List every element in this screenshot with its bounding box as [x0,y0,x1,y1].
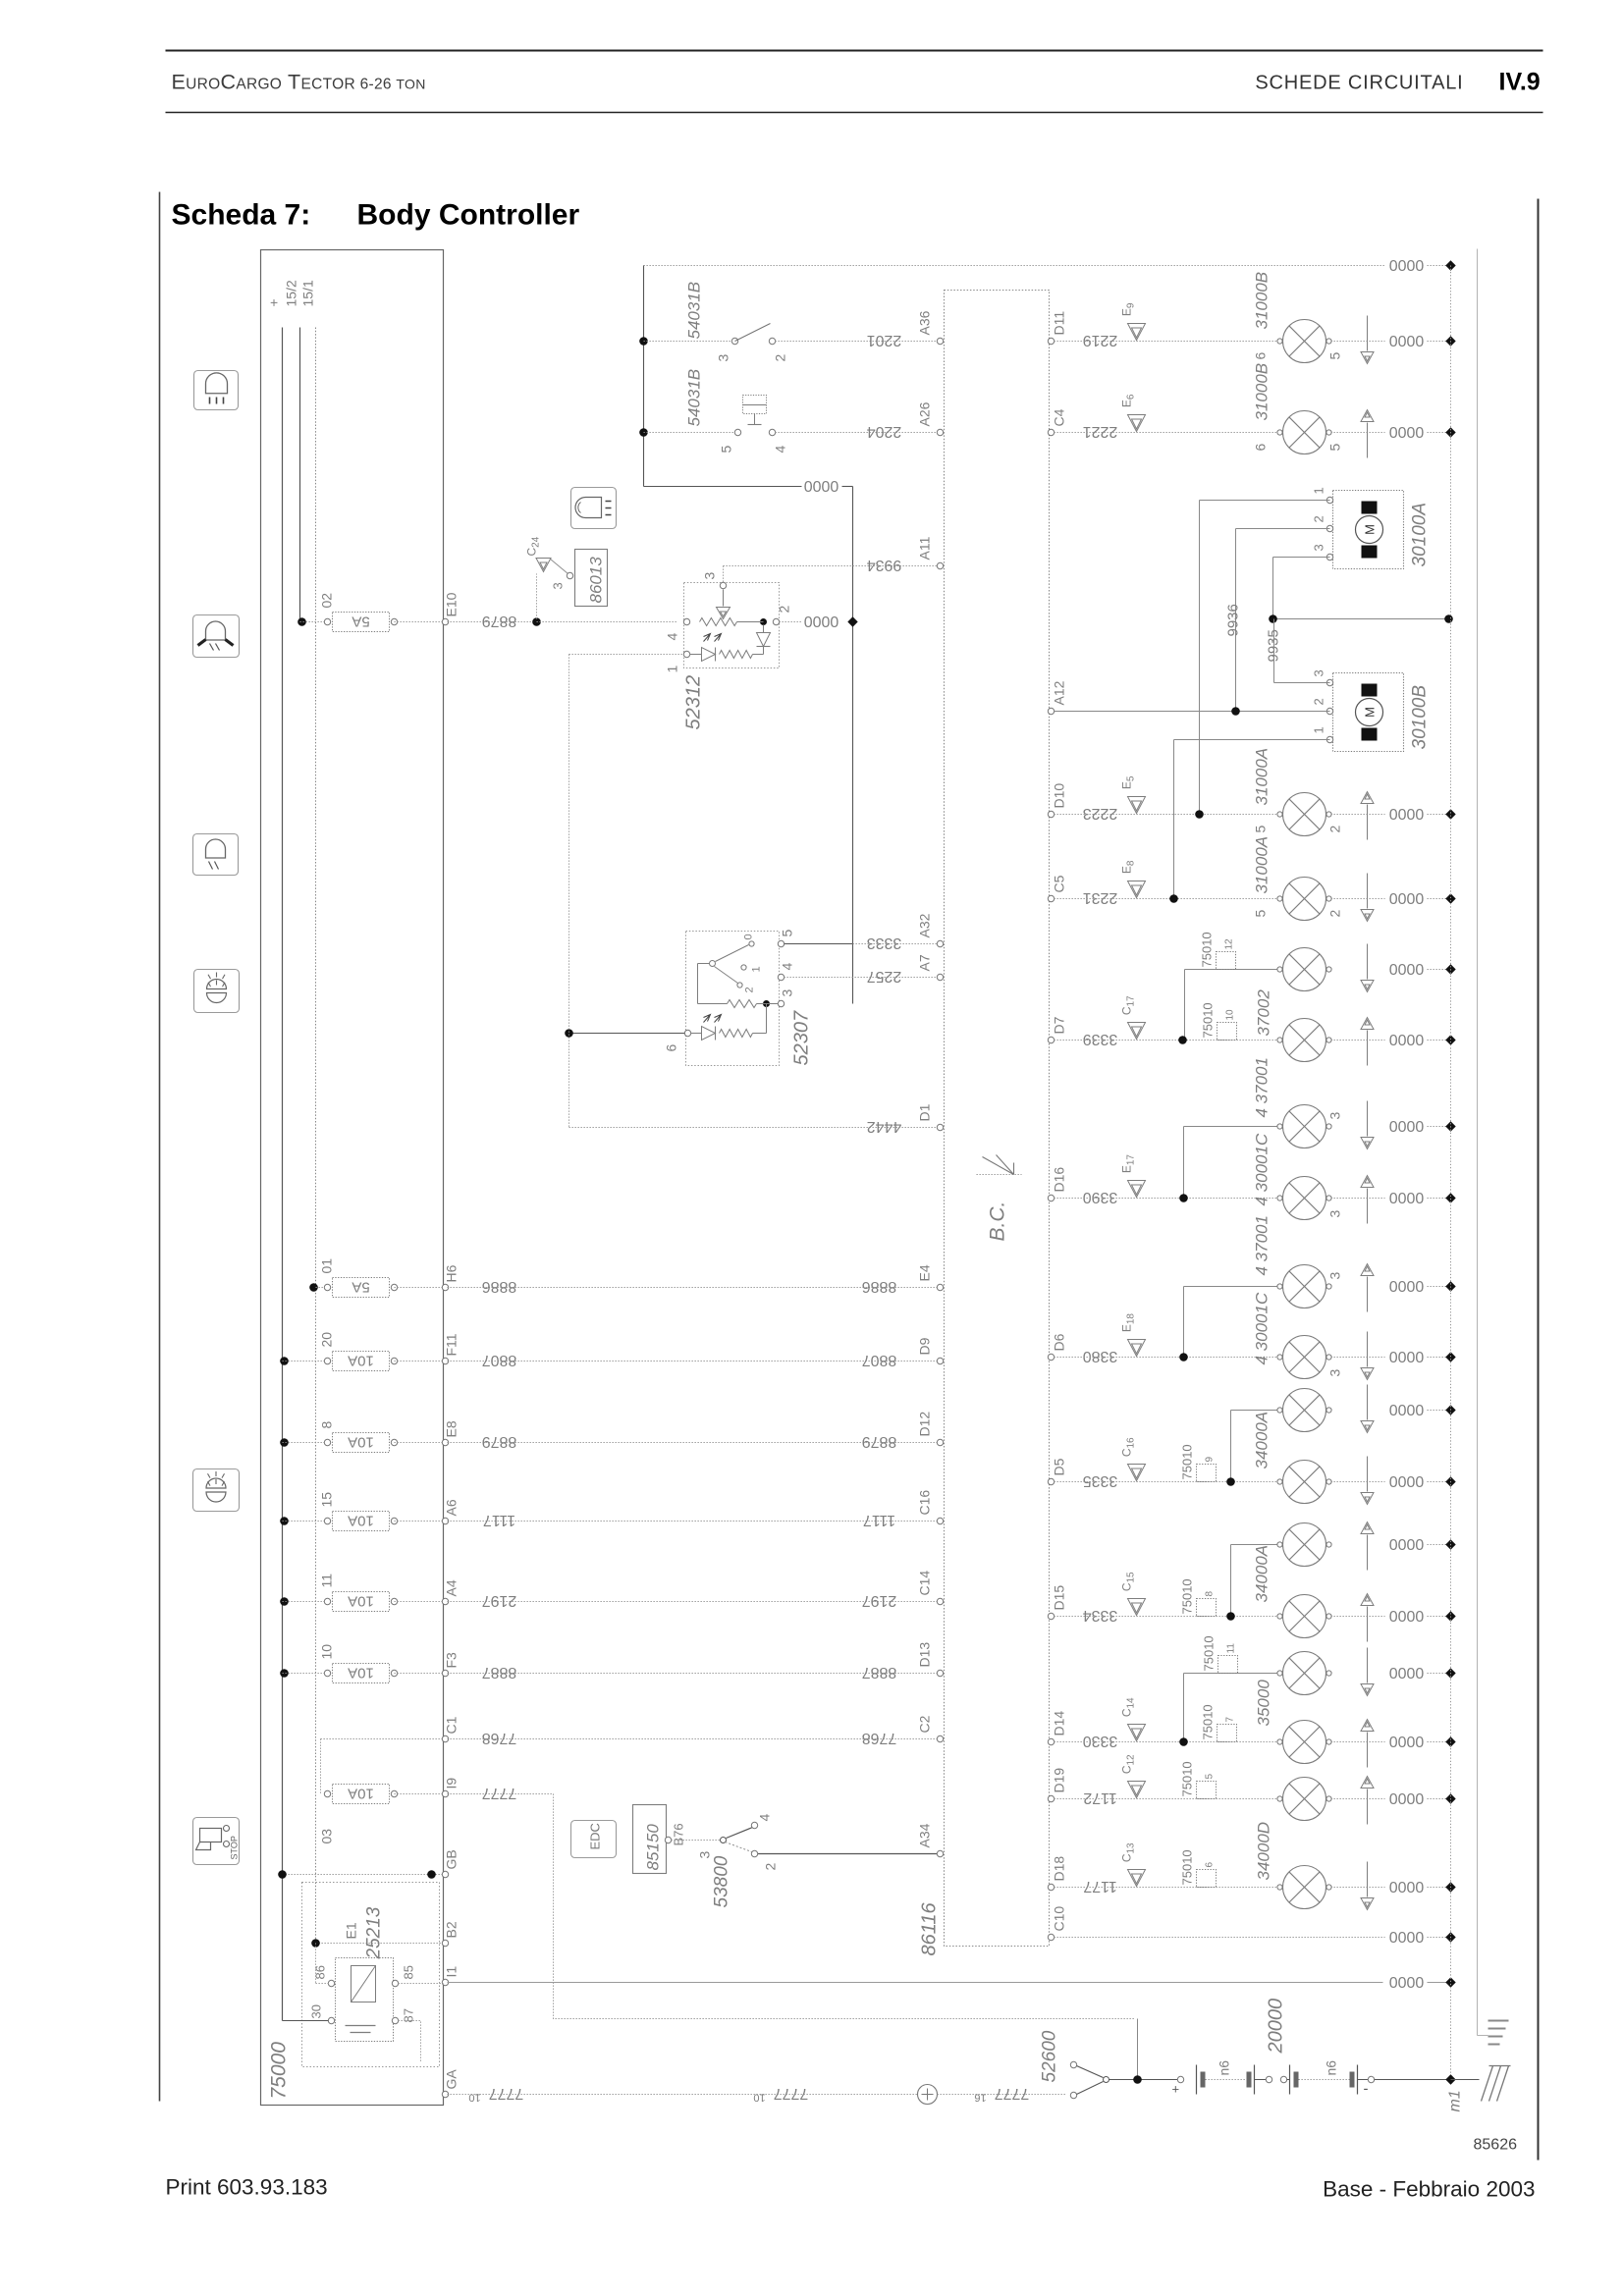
svg-text:0000: 0000 [1389,1607,1425,1624]
svg-text:1177: 1177 [1083,1878,1117,1895]
svg-text:0000: 0000 [1389,1664,1425,1681]
svg-text:Body Controller: Body Controller [357,199,580,232]
svg-text:31000A: 31000A [1253,836,1271,894]
svg-text:3333: 3333 [867,934,902,951]
svg-text:8: 8 [319,1421,335,1429]
svg-text:3: 3 [1327,1272,1343,1280]
svg-text:75010: 75010 [1180,1849,1195,1885]
svg-text:4 30001C: 4 30001C [1253,1292,1271,1364]
svg-text:E8: E8 [444,1420,460,1437]
svg-text:10: 10 [753,2092,765,2104]
svg-text:54031B: 54031B [685,369,704,427]
svg-text:0000: 0000 [1389,423,1425,440]
svg-text:1: 1 [1312,487,1326,494]
svg-text:0000: 0000 [1389,1789,1425,1806]
svg-text:STOP: STOP [230,1836,240,1859]
svg-text:10A: 10A [348,1664,374,1681]
svg-text:0000: 0000 [1389,960,1425,977]
svg-text:0000: 0000 [1389,1401,1425,1417]
svg-text:15/1: 15/1 [300,280,316,306]
svg-text:+: + [266,298,282,306]
svg-text:11: 11 [1226,1643,1237,1654]
svg-text:5A: 5A [352,1278,369,1295]
svg-text:0000: 0000 [1389,1535,1425,1552]
svg-text:3334: 3334 [1083,1607,1118,1624]
svg-text:E4: E4 [917,1264,933,1281]
svg-text:n6: n6 [1324,2060,1339,2076]
svg-text:30: 30 [309,2004,324,2018]
svg-text:0000: 0000 [1389,1189,1425,1205]
svg-text:m1: m1 [1447,2090,1464,2111]
svg-text:+: + [1172,2082,1180,2097]
svg-text:9: 9 [1205,1457,1216,1463]
svg-text:1117: 1117 [863,1512,895,1528]
svg-text:C16: C16 [917,1490,933,1516]
svg-text:6: 6 [664,1044,679,1052]
svg-text:4 37001: 4 37001 [1253,1057,1271,1117]
svg-text:B76: B76 [672,1823,686,1845]
svg-text:6: 6 [1205,1862,1216,1868]
svg-text:2: 2 [763,1863,779,1871]
svg-text:0000: 0000 [1389,1117,1425,1134]
svg-text:75010: 75010 [1180,1761,1195,1796]
svg-text:4: 4 [665,633,680,641]
svg-text:A4: A4 [444,1579,460,1596]
svg-text:2221: 2221 [1083,423,1118,440]
svg-text:0000: 0000 [1389,1472,1425,1489]
svg-text:86116: 86116 [919,1901,941,1955]
svg-text:8886: 8886 [862,1278,897,1295]
svg-text:A12: A12 [1052,680,1067,705]
svg-text:75010: 75010 [1201,1002,1216,1038]
svg-text:1117: 1117 [483,1512,515,1528]
svg-text:3: 3 [697,1851,713,1859]
svg-text:0000: 0000 [804,613,839,629]
svg-text:0000: 0000 [1389,1878,1425,1895]
svg-text:SCHEDE CIRCUITALI: SCHEDE CIRCUITALI [1255,73,1463,94]
svg-text:D16: D16 [1052,1167,1067,1193]
svg-text:30100A: 30100A [1410,503,1431,567]
svg-text:IV.9: IV.9 [1499,69,1541,96]
svg-text:4: 4 [773,446,788,454]
svg-text:54031B: 54031B [685,282,704,340]
svg-text:2201: 2201 [867,332,902,348]
svg-text:5A: 5A [352,613,369,629]
svg-text:10A: 10A [348,1512,374,1528]
svg-text:D10: D10 [1052,783,1067,809]
svg-text:D12: D12 [917,1412,933,1437]
svg-text:3: 3 [1312,669,1326,676]
svg-text:8887: 8887 [482,1664,517,1681]
svg-text:Scheda 7:: Scheda 7: [172,199,311,232]
svg-text:D1: D1 [917,1103,933,1121]
svg-text:0000: 0000 [1389,1973,1425,1990]
svg-text:31000B: 31000B [1253,363,1271,421]
svg-text:B2: B2 [444,1921,460,1938]
svg-text:D18: D18 [1052,1856,1067,1882]
svg-text:2: 2 [777,606,792,614]
svg-text:35000: 35000 [1255,1680,1273,1727]
svg-text:D14: D14 [1052,1711,1067,1736]
svg-text:6: 6 [1253,352,1269,360]
svg-text:2: 2 [773,354,788,362]
svg-text:7777: 7777 [995,2085,1030,2102]
svg-text:85150: 85150 [644,1824,663,1871]
svg-text:D5: D5 [1052,1458,1067,1475]
svg-text:3390: 3390 [1083,1189,1118,1205]
svg-text:85626: 85626 [1474,2137,1518,2154]
svg-text:85: 85 [402,1965,416,1979]
svg-text:0000: 0000 [1389,1277,1425,1294]
svg-text:31000B: 31000B [1253,272,1271,330]
svg-text:Print 603.93.183: Print 603.93.183 [166,2175,328,2200]
svg-text:8807: 8807 [862,1352,897,1368]
svg-text:3339: 3339 [1083,1031,1118,1047]
svg-text:2223: 2223 [1083,805,1118,822]
svg-text:4: 4 [780,963,795,971]
svg-text:3: 3 [1312,544,1326,551]
svg-text:0000: 0000 [1389,1928,1425,1945]
svg-text:86013: 86013 [587,557,606,604]
svg-text:0000: 0000 [1389,256,1425,273]
svg-text:M: M [1363,707,1378,718]
svg-text:2231: 2231 [1083,889,1118,906]
svg-text:16: 16 [974,2092,986,2104]
svg-text:F3: F3 [444,1652,460,1669]
svg-text:C5: C5 [1052,875,1067,892]
svg-text:8: 8 [1205,1591,1216,1597]
svg-text:2204: 2204 [867,423,902,440]
svg-text:3: 3 [1327,1112,1343,1120]
svg-text:C10: C10 [1052,1906,1067,1932]
svg-text:10: 10 [468,2092,480,2104]
svg-text:7777: 7777 [489,2085,524,2102]
svg-text:A36: A36 [917,310,933,335]
svg-text:8879: 8879 [482,1433,517,1450]
svg-text:1: 1 [1312,726,1326,733]
svg-text:75010: 75010 [1200,932,1215,967]
svg-text:15/2: 15/2 [284,280,299,306]
svg-text:2: 2 [744,987,756,992]
svg-text:GA: GA [444,2069,460,2090]
svg-text:A26: A26 [917,401,933,426]
svg-text:D11: D11 [1052,311,1067,336]
svg-text:02: 02 [319,593,335,609]
svg-text:52312: 52312 [683,675,705,730]
svg-text:A32: A32 [917,913,933,937]
svg-text:4 37001: 4 37001 [1253,1215,1271,1275]
svg-text:D6: D6 [1052,1333,1067,1351]
svg-text:7777: 7777 [774,2085,809,2102]
svg-text:30100B: 30100B [1410,685,1431,750]
svg-text:4: 4 [757,1814,773,1822]
svg-text:8886: 8886 [482,1278,517,1295]
svg-text:3335: 3335 [1083,1472,1118,1489]
svg-text:20000: 20000 [1266,1999,1287,2055]
svg-text:25213: 25213 [364,1906,385,1959]
svg-text:75010: 75010 [1180,1444,1195,1479]
svg-text:75010: 75010 [1180,1578,1195,1614]
svg-text:F11: F11 [444,1333,460,1356]
svg-text:D13: D13 [917,1642,933,1668]
svg-text:03: 03 [319,1829,335,1844]
svg-text:2197: 2197 [862,1592,897,1609]
svg-text:3: 3 [551,582,566,589]
svg-text:1172: 1172 [1083,1789,1117,1806]
svg-text:52307: 52307 [791,1010,813,1065]
svg-text:2219: 2219 [1083,332,1118,348]
svg-text:01: 01 [319,1258,335,1274]
svg-text:7768: 7768 [482,1730,517,1746]
svg-text:2: 2 [1312,515,1326,522]
svg-text:34000D: 34000D [1255,1822,1273,1881]
svg-text:15: 15 [319,1492,335,1508]
svg-text:11: 11 [319,1574,335,1588]
svg-text:3: 3 [716,354,731,362]
svg-text:75010: 75010 [1201,1704,1216,1739]
svg-text:n6: n6 [1217,2060,1232,2076]
svg-text:8887: 8887 [862,1664,897,1681]
svg-text:0000: 0000 [1389,332,1425,348]
svg-text:H6: H6 [444,1264,460,1282]
svg-text:6: 6 [1253,444,1269,452]
svg-text:M: M [1363,524,1378,535]
svg-text:10A: 10A [348,1785,374,1801]
svg-text:E1: E1 [344,1922,359,1939]
svg-text:0000: 0000 [804,477,839,494]
svg-text:3: 3 [702,572,718,580]
svg-text:8807: 8807 [482,1352,517,1368]
svg-text:4442: 4442 [867,1118,902,1135]
svg-text:9934: 9934 [867,557,902,573]
svg-text:0000: 0000 [1389,1733,1425,1749]
svg-text:B.C.: B.C. [987,1201,1009,1242]
svg-text:2: 2 [1327,910,1343,918]
svg-text:0: 0 [743,934,755,939]
svg-text:12: 12 [1224,938,1235,950]
svg-text:I9: I9 [444,1778,460,1789]
svg-text:-: - [1364,2081,1369,2098]
svg-text:10A: 10A [348,1592,374,1609]
svg-text:9936: 9936 [1225,604,1242,636]
svg-text:2197: 2197 [482,1592,517,1609]
svg-text:3: 3 [780,989,795,997]
svg-text:A7: A7 [917,954,933,971]
svg-text:0000: 0000 [1389,1031,1425,1047]
svg-text:E10: E10 [444,592,460,616]
svg-text:75010: 75010 [1202,1635,1217,1671]
svg-text:D15: D15 [1052,1585,1067,1611]
svg-text:GB: GB [444,1849,460,1869]
svg-text:5: 5 [780,930,795,937]
svg-text:EDC: EDC [588,1823,603,1849]
svg-text:I1: I1 [444,1966,460,1978]
svg-text:31000A: 31000A [1253,748,1271,806]
svg-text:8879: 8879 [862,1433,897,1450]
svg-text:A11: A11 [917,536,933,560]
svg-text:2257: 2257 [867,968,902,985]
svg-text:2: 2 [1327,826,1343,833]
svg-text:10: 10 [1225,1009,1236,1021]
svg-text:D9: D9 [917,1337,933,1355]
svg-text:C2: C2 [917,1715,933,1733]
svg-text:7: 7 [1225,1717,1236,1723]
svg-text:C4: C4 [1052,408,1067,426]
svg-text:Base - Febbraio 2003: Base - Febbraio 2003 [1323,2177,1535,2202]
svg-text:5: 5 [1205,1774,1216,1780]
svg-text:3: 3 [1327,1210,1343,1218]
svg-text:8879: 8879 [482,613,517,629]
svg-text:5: 5 [719,446,734,454]
svg-text:C14: C14 [917,1571,933,1596]
svg-text:37002: 37002 [1255,989,1273,1037]
svg-text:1: 1 [751,966,763,972]
svg-text:7768: 7768 [862,1730,897,1746]
svg-text:75000: 75000 [268,2042,291,2100]
svg-text:3380: 3380 [1083,1348,1118,1364]
svg-text:34000A: 34000A [1253,1545,1271,1603]
svg-text:3330: 3330 [1083,1733,1118,1749]
svg-text:34000A: 34000A [1253,1412,1271,1469]
svg-text:D19: D19 [1052,1768,1067,1793]
svg-text:5: 5 [1253,826,1269,833]
svg-text:5: 5 [1327,444,1343,452]
svg-text:4 30001C: 4 30001C [1253,1133,1271,1205]
svg-text:5: 5 [1327,352,1343,360]
svg-text:5: 5 [1253,910,1269,918]
svg-text:D7: D7 [1052,1016,1067,1034]
svg-text:20: 20 [319,1332,335,1348]
svg-text:C1: C1 [444,1716,460,1734]
svg-text:10A: 10A [348,1433,374,1450]
svg-text:53800: 53800 [712,1855,732,1907]
svg-text:3: 3 [1327,1369,1343,1377]
svg-text:0000: 0000 [1389,889,1425,906]
svg-text:A34: A34 [917,1823,933,1847]
svg-text:2: 2 [1312,698,1326,705]
svg-text:52600: 52600 [1040,2030,1060,2082]
svg-text:10A: 10A [348,1352,374,1368]
svg-text:0000: 0000 [1389,1348,1425,1364]
svg-text:86: 86 [313,1965,328,1979]
svg-text:A6: A6 [444,1499,460,1516]
svg-text:10: 10 [319,1644,335,1660]
svg-text:0000: 0000 [1389,805,1425,822]
svg-text:7777: 7777 [482,1785,517,1801]
svg-text:1: 1 [665,666,680,673]
